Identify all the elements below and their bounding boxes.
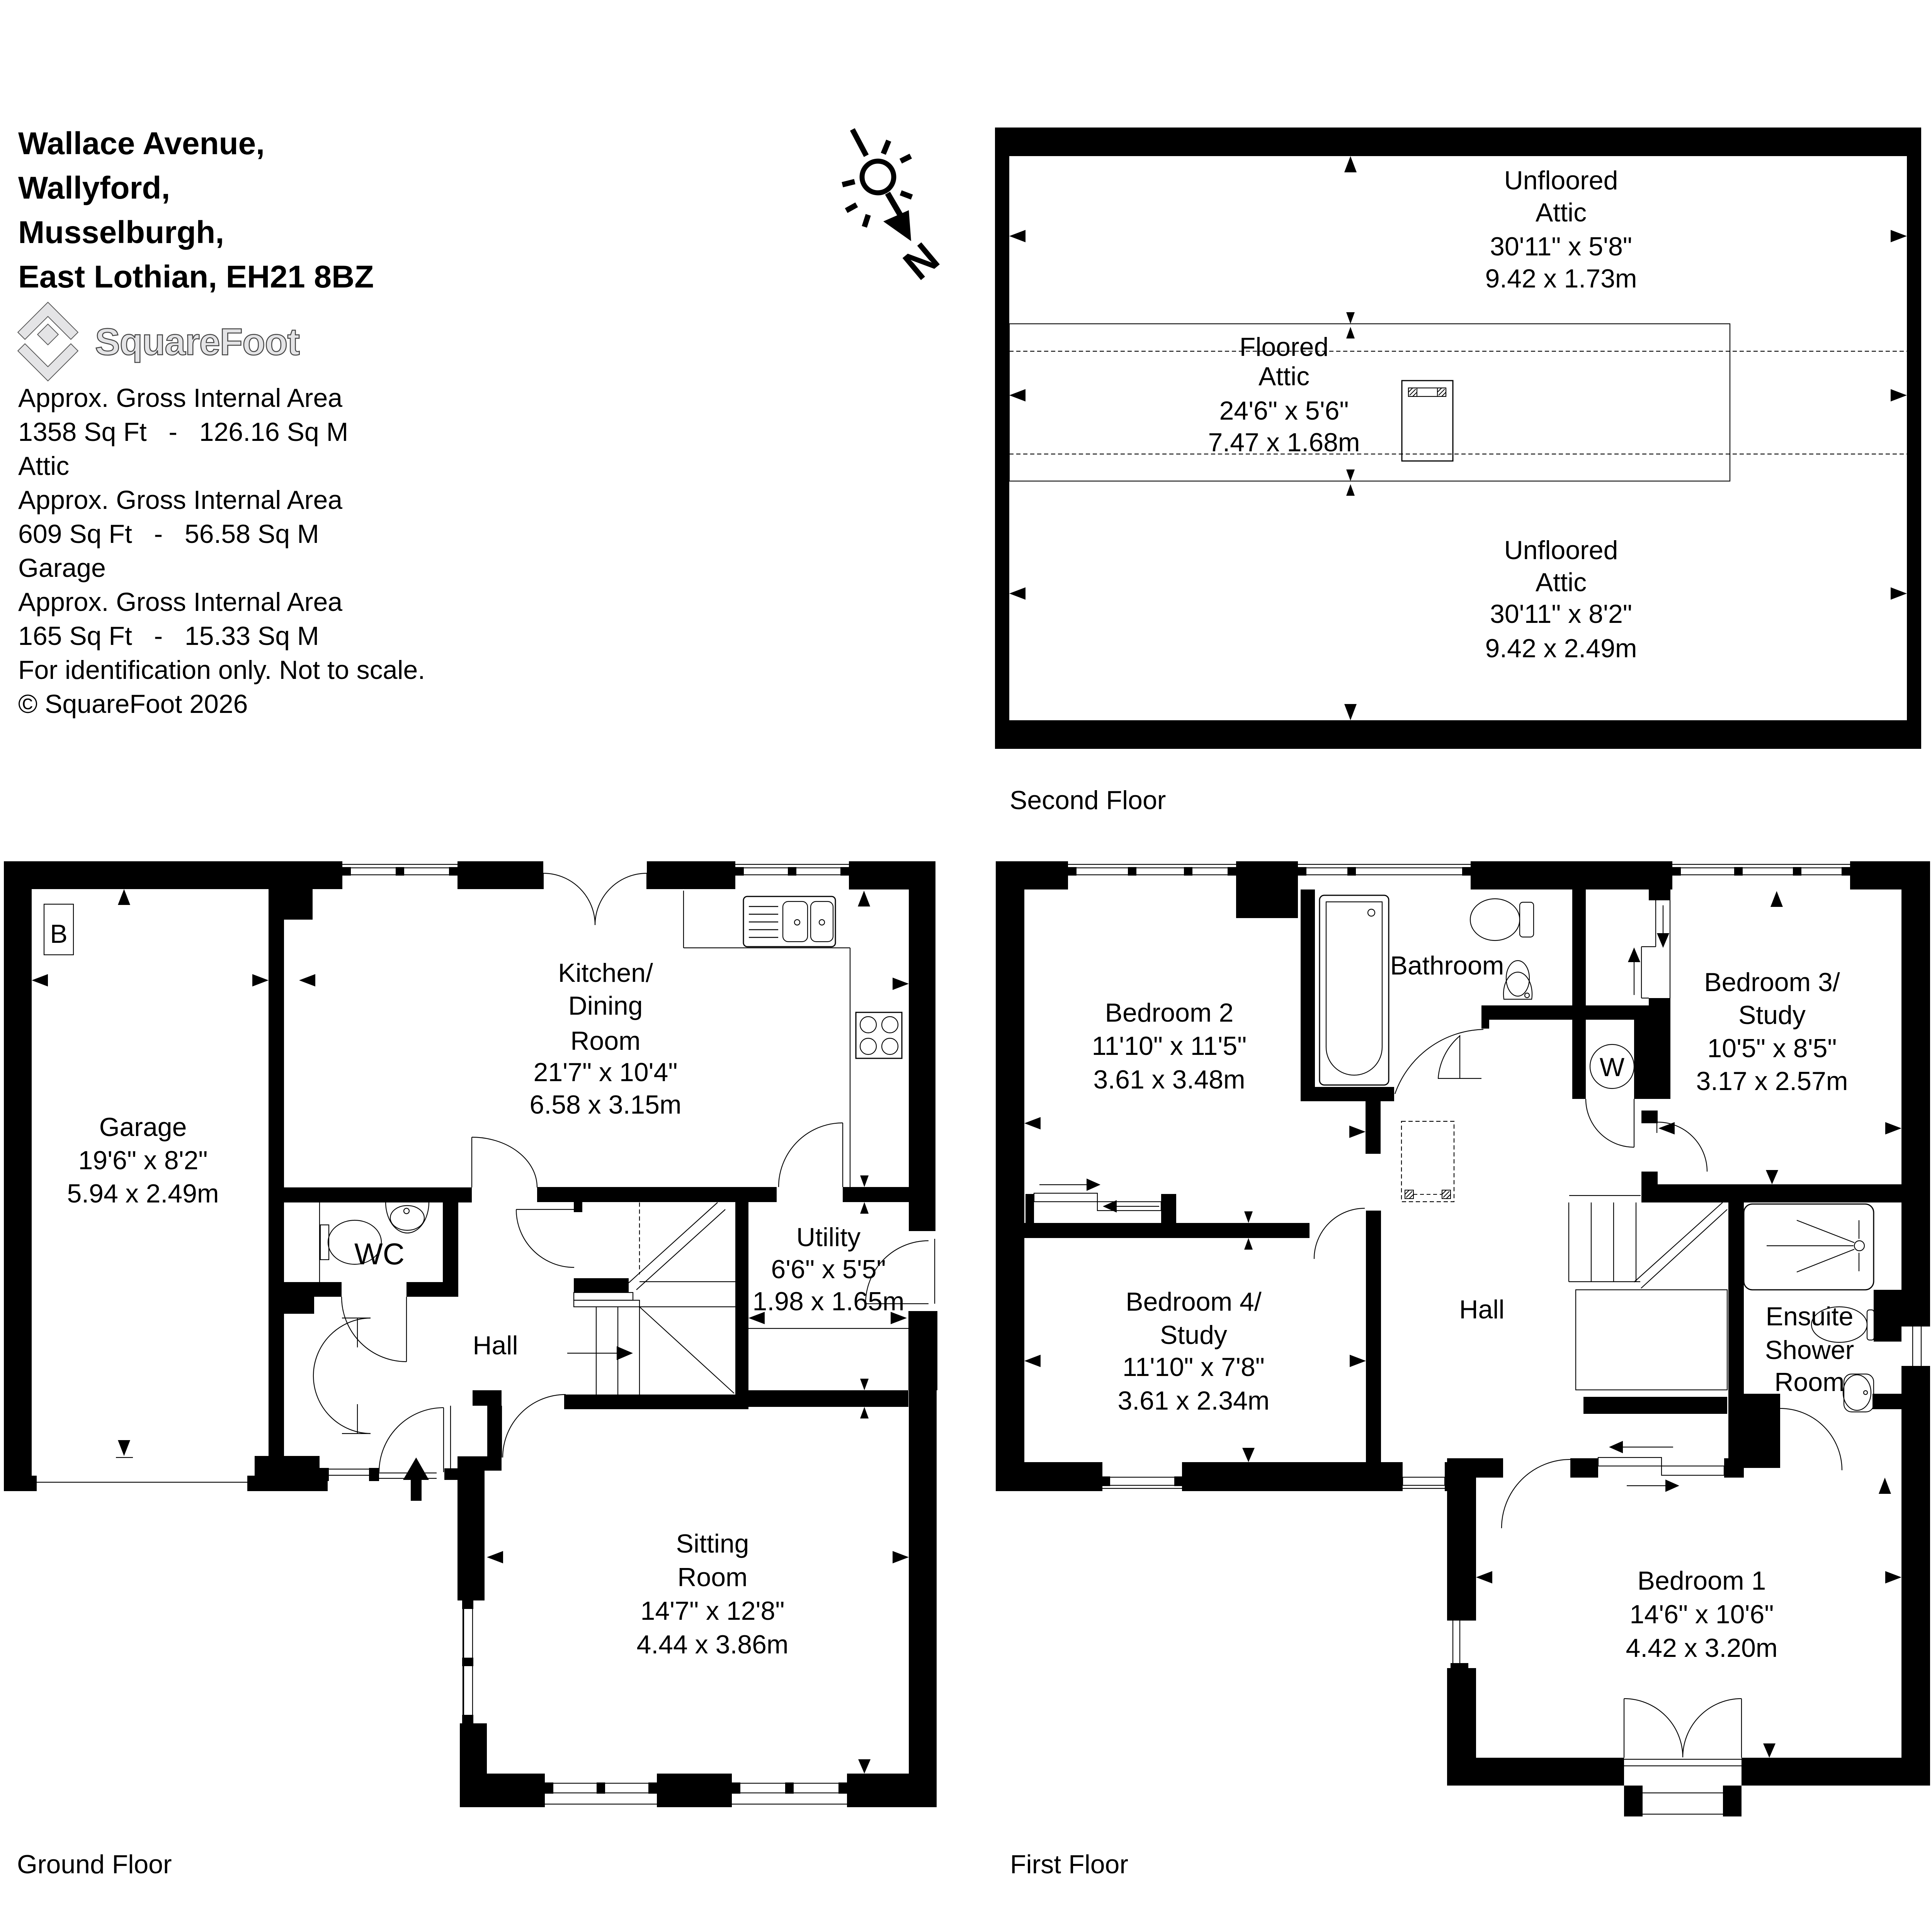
svg-text:Bedroom 3/: Bedroom 3/ [1704, 968, 1840, 997]
svg-text:7.47 x 1.68m: 7.47 x 1.68m [1208, 428, 1360, 457]
svg-text:Wallyford,: Wallyford, [18, 170, 170, 206]
svg-text:3.61 x 2.34m: 3.61 x 2.34m [1117, 1386, 1269, 1415]
svg-text:4.44 x 3.86m: 4.44 x 3.86m [636, 1630, 788, 1659]
svg-text:1.98 x 1.65m: 1.98 x 1.65m [752, 1287, 904, 1316]
svg-text:30'11" x 5'8": 30'11" x 5'8" [1490, 232, 1632, 261]
svg-text:Unfloored: Unfloored [1504, 536, 1618, 565]
svg-text:Ground Floor: Ground Floor [17, 1850, 172, 1879]
svg-text:Wallace Avenue,: Wallace Avenue, [18, 126, 265, 161]
svg-text:Bathroom: Bathroom [1390, 951, 1504, 980]
svg-text:Study: Study [1160, 1320, 1227, 1350]
svg-text:24'6" x 5'6": 24'6" x 5'6" [1219, 396, 1349, 425]
svg-text:11'10" x 7'8": 11'10" x 7'8" [1122, 1352, 1265, 1382]
svg-text:Bedroom 2: Bedroom 2 [1105, 998, 1234, 1027]
svg-text:Floored: Floored [1240, 332, 1329, 362]
svg-text:Attic: Attic [1536, 198, 1587, 227]
svg-text:Hall: Hall [1459, 1295, 1504, 1324]
svg-text:19'6" x 8'2": 19'6" x 8'2" [78, 1146, 207, 1175]
svg-text:10'5" x 8'5": 10'5" x 8'5" [1707, 1034, 1837, 1063]
svg-text:9.42 x 2.49m: 9.42 x 2.49m [1485, 634, 1637, 663]
svg-text:Attic: Attic [1536, 568, 1587, 597]
svg-text:Dining: Dining [568, 991, 643, 1020]
svg-text:165 Sq Ft - 15.33 Sq M: 165 Sq Ft - 15.33 Sq M [18, 621, 319, 651]
svg-text:SquareFoot: SquareFoot [95, 321, 300, 363]
svg-text:Bedroom 4/: Bedroom 4/ [1126, 1287, 1262, 1316]
svg-text:14'6" x 10'6": 14'6" x 10'6" [1630, 1600, 1774, 1629]
svg-text:Approx. Gross Internal Area: Approx. Gross Internal Area [18, 383, 342, 413]
svg-text:30'11" x 8'2": 30'11" x 8'2" [1490, 599, 1632, 629]
svg-text:Bedroom 1: Bedroom 1 [1638, 1566, 1766, 1595]
svg-text:Musselburgh,: Musselburgh, [18, 215, 224, 250]
svg-text:6.58 x 3.15m: 6.58 x 3.15m [529, 1090, 681, 1119]
svg-text:© SquareFoot 2026: © SquareFoot 2026 [18, 689, 248, 719]
svg-text:9.42 x 1.73m: 9.42 x 1.73m [1485, 264, 1637, 293]
svg-text:1358 Sq Ft - 126.16 Sq M: 1358 Sq Ft - 126.16 Sq M [18, 417, 348, 447]
svg-text:Garage: Garage [99, 1112, 187, 1142]
svg-text:Hall: Hall [473, 1331, 518, 1360]
svg-text:Second Floor: Second Floor [1010, 786, 1166, 815]
svg-text:Ensuite: Ensuite [1766, 1302, 1854, 1331]
svg-text:Garage: Garage [18, 553, 106, 583]
svg-text:4.42 x 3.20m: 4.42 x 3.20m [1626, 1633, 1777, 1663]
svg-text:6'6" x 5'5": 6'6" x 5'5" [771, 1255, 886, 1284]
svg-text:21'7" x 10'4": 21'7" x 10'4" [534, 1058, 678, 1087]
svg-text:3.61 x 3.48m: 3.61 x 3.48m [1093, 1065, 1245, 1094]
svg-text:East Lothian, EH21 8BZ: East Lothian, EH21 8BZ [18, 259, 374, 294]
svg-text:Utility: Utility [796, 1223, 861, 1252]
svg-text:Study: Study [1738, 1000, 1806, 1030]
svg-text:Sitting: Sitting [676, 1529, 749, 1558]
svg-text:W: W [1600, 1053, 1624, 1082]
svg-text:3.17 x 2.57m: 3.17 x 2.57m [1696, 1066, 1848, 1096]
svg-text:Shower: Shower [1765, 1335, 1854, 1365]
svg-text:Attic: Attic [1259, 362, 1310, 391]
svg-text:WC: WC [354, 1237, 405, 1271]
svg-text:Room: Room [1774, 1367, 1844, 1397]
svg-text:609 Sq Ft - 56.58 Sq M: 609 Sq Ft - 56.58 Sq M [18, 519, 319, 549]
svg-text:B: B [50, 919, 67, 949]
svg-text:Unfloored: Unfloored [1504, 166, 1618, 195]
svg-text:Kitchen/: Kitchen/ [558, 958, 653, 988]
svg-text:Approx. Gross Internal Area: Approx. Gross Internal Area [18, 485, 342, 515]
svg-text:Room: Room [570, 1026, 640, 1056]
svg-text:14'7" x 12'8": 14'7" x 12'8" [641, 1596, 785, 1626]
svg-text:For identification only. Not t: For identification only. Not to scale. [18, 655, 425, 685]
svg-text:Approx. Gross Internal Area: Approx. Gross Internal Area [18, 587, 342, 617]
svg-text:Attic: Attic [18, 451, 69, 481]
svg-text:11'10" x 11'5": 11'10" x 11'5" [1092, 1031, 1247, 1061]
svg-text:Room: Room [677, 1563, 747, 1592]
svg-text:First Floor: First Floor [1010, 1850, 1128, 1879]
svg-text:5.94 x 2.49m: 5.94 x 2.49m [67, 1179, 219, 1208]
